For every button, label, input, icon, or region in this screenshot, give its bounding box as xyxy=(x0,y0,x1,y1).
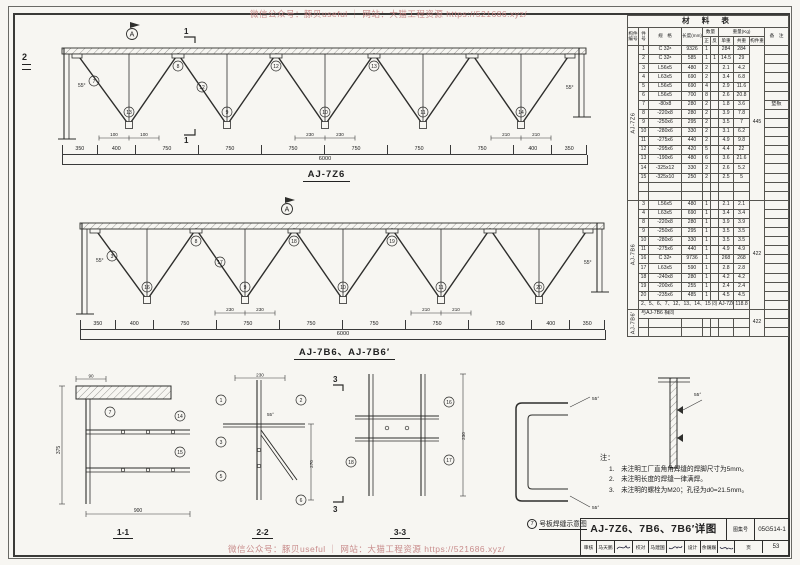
segment-dimension: 750 xyxy=(217,320,280,329)
table-cell xyxy=(649,182,682,191)
svg-text:16: 16 xyxy=(446,400,452,406)
table-cell xyxy=(765,55,789,64)
dim-top: 230 xyxy=(256,373,264,378)
table-cell: 1 xyxy=(703,46,711,55)
table-cell: 284 xyxy=(719,46,734,55)
table-cell: 485 xyxy=(682,291,703,300)
table-cell: 5 xyxy=(639,82,649,91)
table-cell: 2 xyxy=(703,173,711,182)
table-cell: 2 xyxy=(703,73,711,82)
dim-left: 375 xyxy=(56,446,62,455)
table-cell: 4.2 xyxy=(734,273,750,282)
truss-drawing: A 55° 55° 316 817 918 1019 1120 230230 2… xyxy=(52,196,637,320)
table-cell: 422 xyxy=(750,200,765,309)
table-cell: 与AJ-7B6 相同 xyxy=(639,309,750,318)
table-cell: 2.1 xyxy=(734,200,750,209)
table-cell: 5.2 xyxy=(734,164,750,173)
svg-text:230: 230 xyxy=(256,307,264,312)
node-dimensions xyxy=(215,311,471,316)
table-cell: 1 xyxy=(703,264,711,273)
table-cell: 3.5 xyxy=(734,237,750,246)
table-cell xyxy=(765,64,789,73)
table-cell xyxy=(765,146,789,155)
svg-text:6: 6 xyxy=(300,498,303,504)
drawing-title: AJ-7Z6、7B6、7B6′详图 xyxy=(581,519,727,540)
table-cell: 420 xyxy=(682,146,703,155)
table-cell xyxy=(682,319,703,328)
table-cell: 295 xyxy=(682,228,703,237)
proof-name: 马建国 xyxy=(649,541,667,553)
table-cell xyxy=(711,264,719,273)
table-cell: -190x6 xyxy=(649,155,682,164)
table-cell xyxy=(639,319,649,328)
table-cell xyxy=(711,155,719,164)
section-drawing: 375 900 90 7 14 15 xyxy=(48,372,198,520)
table-cell: 1 xyxy=(703,282,711,291)
title-block-row1: AJ-7Z6、7B6、7B6′详图 图集号 05G514-1 xyxy=(581,519,789,541)
top-chord xyxy=(62,48,586,54)
table-cell: 材 料 表 xyxy=(628,16,789,28)
table-cell: 6.8 xyxy=(734,73,750,82)
table-cell xyxy=(765,228,789,237)
materials-table: 材 料 表构件编号件号规 格长度(mm)数量重量(Kg)备 注正反单重共重构件重… xyxy=(627,15,789,337)
piece-number-bubbles xyxy=(346,397,454,467)
table-cell xyxy=(711,173,719,182)
section-label: 3-3 xyxy=(325,527,475,537)
table-cell: 700 xyxy=(682,91,703,100)
table-cell: 15 xyxy=(639,173,649,182)
table-cell: 280 xyxy=(682,109,703,118)
node-gussets xyxy=(90,229,593,304)
table-cell xyxy=(711,228,719,237)
table-cell: -275x6 xyxy=(649,246,682,255)
table-cell: 330 xyxy=(682,164,703,173)
table-cell xyxy=(765,255,789,264)
angle-label: 55° xyxy=(694,392,701,398)
table-cell: -200x6 xyxy=(649,282,682,291)
table-cell xyxy=(765,173,789,182)
table-cell xyxy=(711,237,719,246)
section-cut-mark-2: 2 xyxy=(22,52,31,70)
section-drawing: 230 3 3 16 17 18 xyxy=(325,366,475,520)
table-cell xyxy=(765,91,789,100)
bolts xyxy=(121,430,174,471)
dim-right: 230 xyxy=(461,432,466,440)
table-cell: 垫板 xyxy=(765,100,789,109)
table-cell xyxy=(639,328,649,337)
bolts xyxy=(385,426,409,430)
segment-dimension: 350 xyxy=(552,145,587,154)
table-cell xyxy=(765,273,789,282)
table-cell: 295 xyxy=(682,118,703,127)
table-cell: 3.5 xyxy=(719,228,734,237)
svg-text:8: 8 xyxy=(177,64,180,70)
table-cell: 3 xyxy=(639,200,649,209)
table-cell: 3.5 xyxy=(719,237,734,246)
table-cell: 8 xyxy=(703,91,711,100)
table-cell: 4.9 xyxy=(734,246,750,255)
table-cell: 118.8 xyxy=(734,300,750,309)
svg-text:210: 210 xyxy=(532,132,540,137)
table-cell: 4.4 xyxy=(719,146,734,155)
table-cell: -220x8 xyxy=(649,218,682,227)
svg-text:2: 2 xyxy=(300,398,303,404)
table-cell: 3.9 xyxy=(734,218,750,227)
table-cell: 284 xyxy=(734,46,750,55)
table-cell: 268 xyxy=(734,255,750,264)
angle-label: 55° xyxy=(584,260,592,266)
segment-dimension-row: 350400750750750750750750400350 xyxy=(62,145,587,155)
table-cell: 7 xyxy=(734,118,750,127)
table-cell xyxy=(711,73,719,82)
segment-dimension: 350 xyxy=(63,145,98,154)
segment-dimension: 750 xyxy=(343,320,406,329)
table-cell: 6.2 xyxy=(734,128,750,137)
cut-2-label: 2 xyxy=(22,52,27,62)
table-cell: 2 xyxy=(703,118,711,127)
table-cell xyxy=(765,309,789,318)
table-cell xyxy=(649,191,682,200)
table-cell xyxy=(765,73,789,82)
table-cell: 1 xyxy=(703,228,711,237)
svg-text:230: 230 xyxy=(306,132,314,137)
svg-text:18: 18 xyxy=(348,460,354,466)
svg-text:7: 7 xyxy=(109,410,112,416)
angle-label: 55° xyxy=(78,83,86,89)
table-cell: 3.6 xyxy=(719,155,734,164)
table-cell xyxy=(711,182,719,191)
table-cell: 690 xyxy=(682,209,703,218)
table-cell: 4.9 xyxy=(719,137,734,146)
table-cell xyxy=(639,191,649,200)
plate-number-bubble: 7 xyxy=(527,519,537,529)
segment-dimension: 400 xyxy=(116,320,154,329)
drawing-sheet: { "watermark": { "text": "微信公众号：豚贝useful… xyxy=(0,0,800,565)
table-cell xyxy=(765,291,789,300)
notes-block: 注： 1. 未注明工厂直角角焊缝的焊脚尺寸为5mm。2. 未注明长度的焊缝一律满… xyxy=(600,452,792,496)
svg-text:15: 15 xyxy=(177,450,183,456)
table-cell: 7.8 xyxy=(734,109,750,118)
table-cell xyxy=(711,255,719,264)
design-label: 设计 xyxy=(685,541,701,553)
svg-text:230: 230 xyxy=(336,132,344,137)
svg-text:14: 14 xyxy=(177,414,183,420)
table-cell xyxy=(711,137,719,146)
table-cell: 10 xyxy=(639,128,649,137)
segment-dimension: 400 xyxy=(98,145,136,154)
table-cell: L56x5 xyxy=(649,200,682,209)
section-drawing: 230 270 55° 1 3 5 2 6 xyxy=(205,372,320,520)
table-cell: 规 格 xyxy=(649,28,682,46)
table-cell xyxy=(765,300,789,309)
table-cell: 长度(mm) xyxy=(682,28,703,46)
table-cell xyxy=(711,46,719,55)
table-cell: 件号 xyxy=(639,28,649,46)
table-cell: -295x6 xyxy=(649,146,682,155)
segment-dimension: 750 xyxy=(199,145,262,154)
table-cell: 重量(Kg) xyxy=(719,28,765,37)
section-3-3: 230 3 3 16 17 18 3-3 xyxy=(325,366,475,537)
angle-label: 55° xyxy=(592,505,599,511)
table-cell: 3.4 xyxy=(719,73,734,82)
svg-text:8: 8 xyxy=(195,239,198,245)
table-cell: 20.8 xyxy=(734,91,750,100)
table-cell: -280x6 xyxy=(649,128,682,137)
dimension-lines xyxy=(235,375,314,500)
table-cell: 2 xyxy=(703,164,711,173)
svg-text:210: 210 xyxy=(452,307,460,312)
table-cell: 4.9 xyxy=(719,246,734,255)
table-cell: 17 xyxy=(639,264,649,273)
watermark-bottom: 微信公众号：豚贝useful ｜ 网站：大猫工程资源 https://52168… xyxy=(228,543,505,555)
table-cell xyxy=(649,328,682,337)
svg-text:3: 3 xyxy=(220,440,223,446)
table-cell: 4 xyxy=(703,82,711,91)
table-cell xyxy=(765,128,789,137)
svg-text:210: 210 xyxy=(422,307,430,312)
table-cell xyxy=(711,291,719,300)
table-cell: 16 xyxy=(639,255,649,264)
table-cell xyxy=(711,146,719,155)
svg-text:13: 13 xyxy=(371,64,377,70)
table-cell: 10 xyxy=(639,237,649,246)
table-cell: 9.8 xyxy=(734,137,750,146)
truss-elevation-aj7b6: A 55° 55° 316 817 918 1019 1120 230230 2… xyxy=(52,196,637,358)
table-cell: 330 xyxy=(682,128,703,137)
svg-text:9: 9 xyxy=(244,285,247,291)
table-cell: 3.4 xyxy=(719,209,734,218)
table-cell: 2.6 xyxy=(719,91,734,100)
table-cell: 4.5 xyxy=(734,291,750,300)
table-cell: 3.4 xyxy=(734,209,750,218)
table-cell xyxy=(765,200,789,209)
table-cell: L56x5 xyxy=(649,91,682,100)
table-cell xyxy=(682,191,703,200)
table-cell xyxy=(703,191,711,200)
table-cell: 12 xyxy=(639,146,649,155)
table-cell xyxy=(719,182,734,191)
table-cell: -220x8 xyxy=(649,109,682,118)
table-cell: L63x5 xyxy=(649,209,682,218)
table-cell: C 32ᵃ xyxy=(649,55,682,64)
design-signature xyxy=(718,541,735,553)
table-cell: 备 注 xyxy=(765,28,789,46)
table-cell: 6 xyxy=(639,91,649,100)
svg-text:1: 1 xyxy=(184,27,189,36)
table-cell: 2.8 xyxy=(734,264,750,273)
segment-dimension: 750 xyxy=(388,145,451,154)
table-cell xyxy=(765,246,789,255)
table-cell: AJ-7B6 xyxy=(628,200,639,309)
table-cell: 480 xyxy=(682,64,703,73)
total-dimension: 6000 xyxy=(62,155,588,165)
table-cell: L56x5 xyxy=(649,64,682,73)
table-cell: 2 xyxy=(639,55,649,64)
segment-dimension: 750 xyxy=(406,320,469,329)
table-cell: 690 xyxy=(682,82,703,91)
svg-text:100: 100 xyxy=(140,132,148,137)
cut-2-tick xyxy=(22,69,31,70)
table-cell: -275x6 xyxy=(649,137,682,146)
table-cell xyxy=(639,182,649,191)
truss-drawing: A 1 1 55° 55° 713 812 912 1013 1114 xyxy=(34,21,619,145)
svg-text:3: 3 xyxy=(333,505,338,514)
table-cell: 440 xyxy=(682,246,703,255)
truss-title: AJ-7B6、AJ-7B6′ xyxy=(52,344,637,358)
table-cell: 9326 xyxy=(682,46,703,55)
table-cell xyxy=(765,237,789,246)
table-cell: 255 xyxy=(682,282,703,291)
section-label: 2-2 xyxy=(205,527,320,537)
table-cell: 9 xyxy=(639,118,649,127)
table-cell: 2.5 xyxy=(719,173,734,182)
table-cell xyxy=(711,200,719,209)
table-cell xyxy=(711,218,719,227)
table-cell xyxy=(711,128,719,137)
table-cell: 280 xyxy=(682,218,703,227)
dim-bottom: 900 xyxy=(134,508,143,514)
svg-text:1: 1 xyxy=(184,136,189,145)
notes-list: 1. 未注明工厂直角角焊缝的焊脚尺寸为5mm。2. 未注明长度的焊缝一律满焊。3… xyxy=(600,465,792,497)
table-cell xyxy=(734,182,750,191)
table-cell xyxy=(765,46,789,55)
section-label: 1-1 xyxy=(48,527,198,537)
svg-text:5: 5 xyxy=(220,474,223,480)
table-cell: 22 xyxy=(734,146,750,155)
angle-label: 55° xyxy=(592,396,599,402)
total-dimension: 6000 xyxy=(80,330,606,340)
bolts xyxy=(257,448,260,467)
node-dimension-labels: 230230 210210 xyxy=(226,307,460,312)
table-cell: 2.6 xyxy=(719,164,734,173)
title-block-row2: 审核 马天鹏 校对 马建国 设计 余巍巍 页 53 xyxy=(581,541,789,553)
table-cell: 1 xyxy=(703,255,711,264)
top-chord xyxy=(80,223,604,229)
table-cell: 250 xyxy=(682,173,703,182)
table-cell xyxy=(711,191,719,200)
table-cell: C 32ᵃ xyxy=(649,46,682,55)
svg-text:12: 12 xyxy=(273,64,279,70)
table-cell: 4.2 xyxy=(719,273,734,282)
atlas-number: 05G514-1 xyxy=(755,519,789,540)
channel-flange xyxy=(76,386,171,399)
table-cell: 1 xyxy=(703,246,711,255)
segment-dimension: 350 xyxy=(570,320,605,329)
table-cell xyxy=(711,209,719,218)
table-cell: 5 xyxy=(734,173,750,182)
table-cell xyxy=(719,319,734,328)
table-cell: 480 xyxy=(682,155,703,164)
table-cell: 共重 xyxy=(734,37,750,46)
table-cell: 1.8 xyxy=(719,100,734,109)
atlas-number-label: 图集号 xyxy=(727,519,755,540)
table-cell: 3.9 xyxy=(719,109,734,118)
table-cell: 3.5 xyxy=(734,228,750,237)
table-cell: 8 xyxy=(639,218,649,227)
dim-top: 90 xyxy=(88,374,94,379)
table-cell: 690 xyxy=(682,73,703,82)
table-cell: 2.9 xyxy=(719,82,734,91)
segment-dimension: 750 xyxy=(280,320,343,329)
svg-text:100: 100 xyxy=(110,132,118,137)
svg-text:230: 230 xyxy=(226,307,234,312)
table-cell: 2 xyxy=(703,109,711,118)
table-cell: 3 xyxy=(639,64,649,73)
table-cell: -250x6 xyxy=(649,118,682,127)
table-cell: 构件重 xyxy=(750,37,765,46)
table-cell xyxy=(711,118,719,127)
table-cell xyxy=(711,246,719,255)
table-cell: -325x12 xyxy=(649,164,682,173)
table-cell: 2.8 xyxy=(719,264,734,273)
table-cell: AJ-7B6′ xyxy=(628,309,639,336)
table-cell xyxy=(765,264,789,273)
note-item: 2. 未注明长度的焊缝一律满焊。 xyxy=(600,475,792,486)
table-cell xyxy=(711,100,719,109)
table-cell xyxy=(765,328,789,337)
piece-number-bubbles xyxy=(105,407,185,457)
page-label: 页 xyxy=(735,541,763,553)
signature-mark xyxy=(668,543,683,552)
table-cell xyxy=(711,273,719,282)
table-cell: 13 xyxy=(639,155,649,164)
review-label: 审核 xyxy=(581,541,597,553)
table-cell xyxy=(711,319,719,328)
svg-text:20: 20 xyxy=(536,285,542,291)
design-name: 余巍巍 xyxy=(701,541,718,553)
table-cell: 2 xyxy=(703,64,711,73)
table-cell: L56x5 xyxy=(649,82,682,91)
svg-text:11: 11 xyxy=(438,285,443,291)
table-cell: 1 xyxy=(711,55,719,64)
table-cell xyxy=(703,182,711,191)
weld-symbol xyxy=(677,406,683,414)
table-cell: 21.6 xyxy=(734,155,750,164)
table-cell xyxy=(711,82,719,91)
table-cell xyxy=(682,182,703,191)
table-cell: 单重 xyxy=(719,37,734,46)
table-cell xyxy=(711,164,719,173)
table-cell xyxy=(711,64,719,73)
section-1-1: 375 900 90 7 14 15 1-1 xyxy=(48,372,198,537)
table-cell xyxy=(734,328,750,337)
svg-text:7: 7 xyxy=(93,79,96,85)
table-cell xyxy=(711,91,719,100)
table-cell xyxy=(765,282,789,291)
truss-title: AJ-7Z6 xyxy=(34,169,619,180)
table-cell: 445 xyxy=(750,46,765,201)
table-cell: -325x10 xyxy=(649,173,682,182)
table-cell: 2 xyxy=(703,128,711,137)
table-cell: L63x5 xyxy=(649,264,682,273)
svg-text:3: 3 xyxy=(111,254,114,260)
table-cell: 20 xyxy=(639,291,649,300)
proof-label: 校对 xyxy=(633,541,649,553)
marker-a-label: A xyxy=(285,207,290,214)
weld-marker-a: A xyxy=(282,197,296,215)
table-cell: 2.4 xyxy=(719,282,734,291)
table-cell: 4 xyxy=(639,209,649,218)
table-cell: 正 xyxy=(703,37,711,46)
table-cell: 18 xyxy=(639,273,649,282)
table-cell: 14.5 xyxy=(719,55,734,64)
table-cell: 数量 xyxy=(703,28,719,37)
table-cell xyxy=(711,282,719,291)
segment-dimension: 750 xyxy=(451,145,514,154)
table-cell: 9 xyxy=(639,228,649,237)
table-cell: 2.4 xyxy=(734,282,750,291)
segment-dimension: 750 xyxy=(262,145,325,154)
